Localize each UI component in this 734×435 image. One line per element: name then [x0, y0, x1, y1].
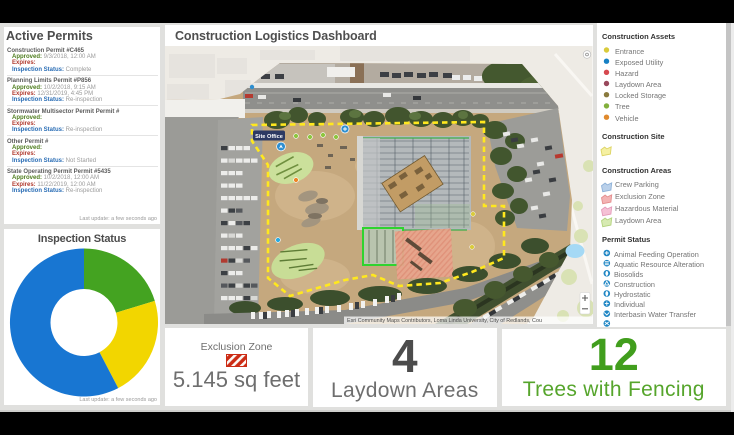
svg-text:Site Office: Site Office	[255, 134, 283, 140]
svg-text:Esri Community Maps Contributo: Esri Community Maps Contributors, Loma L…	[347, 318, 542, 324]
